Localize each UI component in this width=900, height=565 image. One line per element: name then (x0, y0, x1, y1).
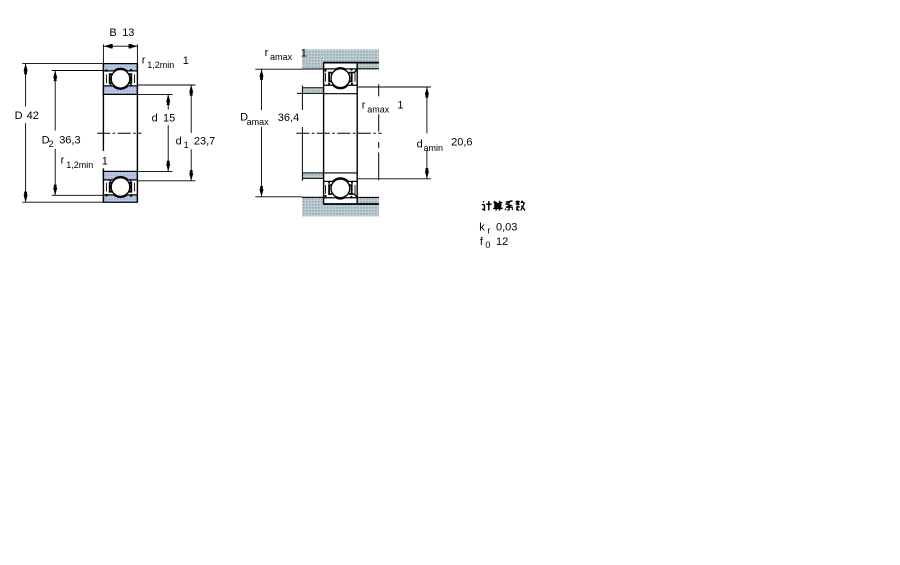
svg-text:1: 1 (301, 48, 307, 60)
svg-text:1: 1 (184, 140, 189, 150)
svg-text:1: 1 (102, 155, 108, 167)
svg-text:k: k (479, 222, 485, 234)
svg-text:d: d (176, 135, 182, 147)
svg-text:0,03: 0,03 (496, 222, 517, 234)
svg-text:d: d (417, 138, 423, 150)
svg-text:1,2min: 1,2min (66, 160, 93, 170)
svg-text:D: D (15, 110, 23, 122)
svg-text:d: d (152, 113, 158, 125)
svg-text:42: 42 (27, 110, 39, 122)
svg-text:36,4: 36,4 (278, 112, 299, 124)
svg-text:36,3: 36,3 (59, 134, 80, 146)
svg-text:23,7: 23,7 (194, 135, 215, 147)
svg-text:amax: amax (247, 117, 270, 127)
svg-text:r: r (487, 225, 490, 235)
svg-text:15: 15 (163, 113, 175, 125)
svg-text:13: 13 (122, 27, 134, 39)
svg-text:amin: amin (424, 143, 444, 153)
svg-text:2: 2 (49, 139, 54, 149)
svg-text:r: r (142, 54, 146, 66)
svg-text:1: 1 (397, 100, 403, 112)
svg-text:20,6: 20,6 (451, 137, 472, 149)
svg-text:r: r (265, 47, 269, 59)
svg-text:1: 1 (183, 55, 189, 67)
svg-text:12: 12 (496, 236, 508, 248)
svg-text:amax: amax (270, 52, 293, 62)
svg-text:0: 0 (485, 240, 490, 250)
svg-text:amax: amax (367, 104, 390, 114)
svg-text:r: r (362, 100, 366, 112)
svg-text:1,2min: 1,2min (147, 60, 174, 70)
svg-text:r: r (61, 154, 65, 166)
svg-text:B: B (109, 27, 116, 39)
